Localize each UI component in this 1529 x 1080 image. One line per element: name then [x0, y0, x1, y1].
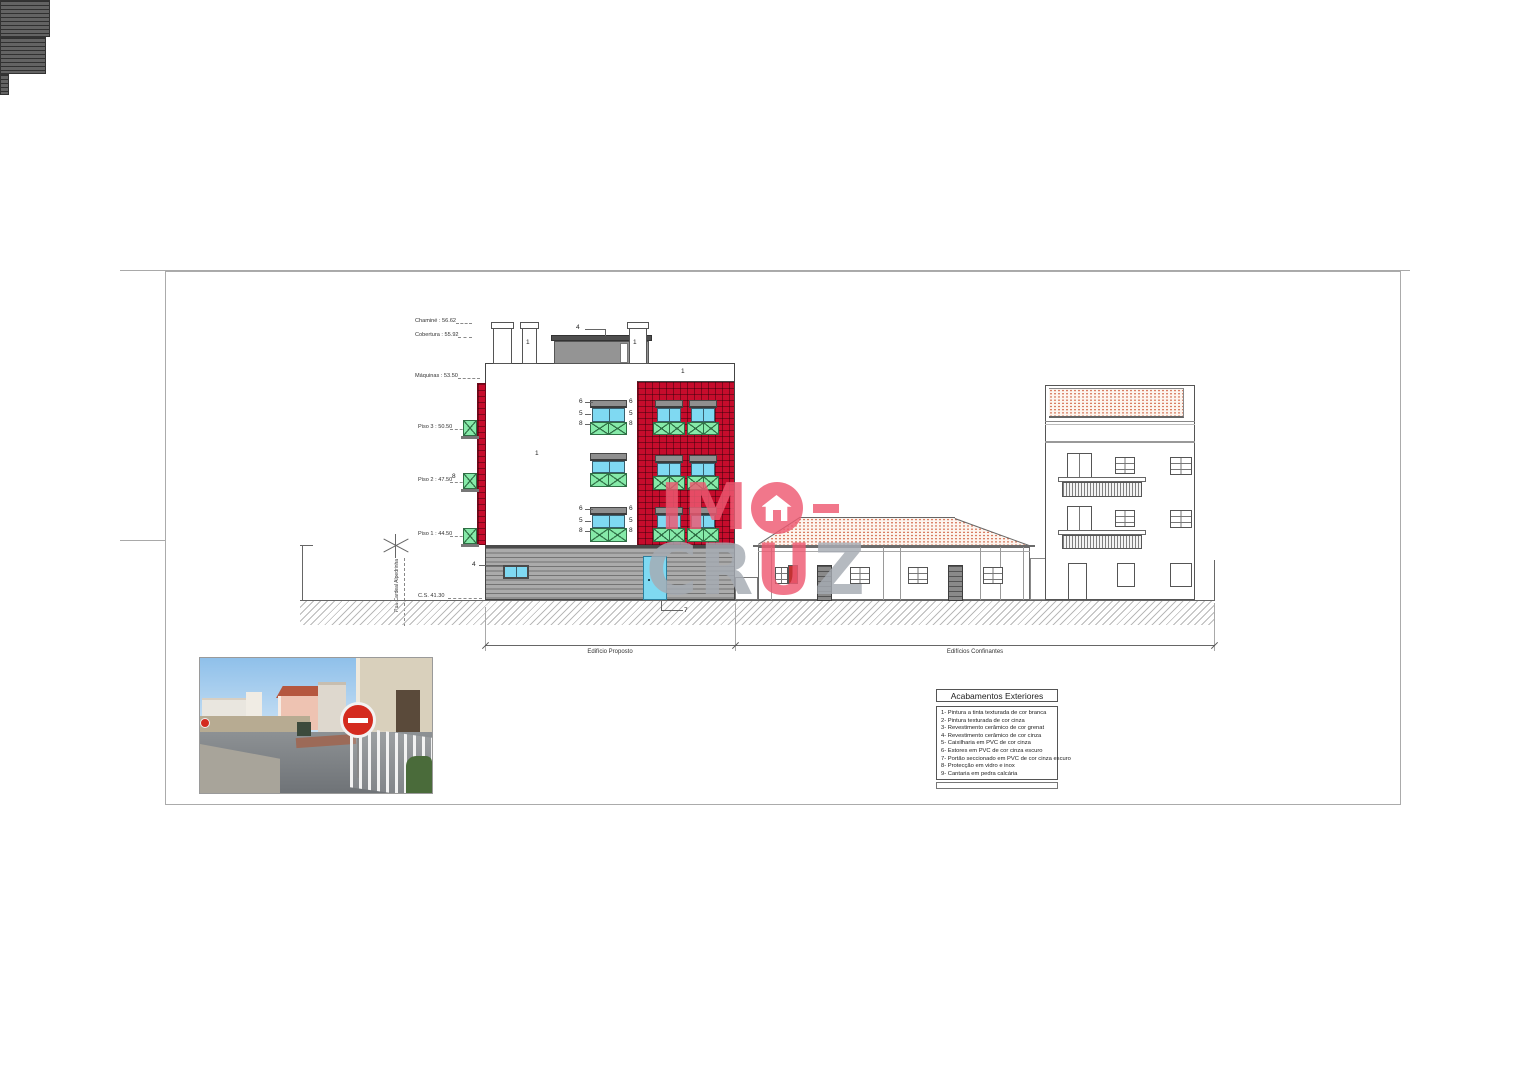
yard-wall — [1030, 558, 1046, 600]
legend-item: 7- Portão seccionado em PVC de cor cinza… — [941, 756, 1057, 764]
window-railing — [590, 473, 627, 487]
window-plain — [1117, 563, 1135, 587]
side-window — [463, 473, 477, 489]
drawing-sheet: Chaminé : 56.62 Cobertura : 55.92 Máquin… — [0, 0, 1529, 1080]
house-ridge-line — [800, 517, 955, 518]
garage-door — [0, 37, 46, 74]
window-shutter-box — [590, 453, 627, 461]
dimension-label-adjoining: Edifícios Confinantes — [735, 649, 1215, 656]
house-window — [908, 567, 928, 584]
leader-line — [585, 414, 591, 415]
callout-8: 8 — [629, 527, 633, 534]
window-glass — [691, 463, 715, 476]
level-label-roof: Cobertura : 55.92 — [415, 332, 459, 339]
leader-line — [605, 329, 606, 336]
house-window — [983, 567, 1003, 584]
house-door — [817, 565, 832, 601]
garage-door — [0, 0, 50, 37]
cornice-line — [1045, 421, 1195, 422]
legend-item: 6- Estores em PVC de cor cinza escuro — [941, 748, 1057, 756]
legend-item: 5- Caixilharia em PVC de cor cinza — [941, 740, 1057, 748]
level-label-machines: Máquinas : 53.50 — [415, 373, 458, 380]
legend-title-box: Acabamentos Exteriores — [936, 689, 1058, 702]
window-shutter-box — [655, 507, 683, 515]
leader-line — [479, 565, 503, 566]
callout-8: 8 — [579, 527, 583, 534]
legend-item: 8- Protecção em vidro e inox — [941, 763, 1057, 771]
adjacent-roof-band — [1049, 388, 1184, 418]
legend-items-box: 1- Pintura a tinta texturada de cor bran… — [936, 706, 1058, 780]
callout-1-parapet: 1 — [681, 368, 685, 375]
boundary-gate — [0, 74, 9, 95]
callout-6: 6 — [579, 398, 583, 405]
callout-4-ground: 4 — [472, 561, 476, 568]
level-dash — [456, 323, 472, 324]
leader-line — [585, 424, 591, 425]
leader-line — [585, 402, 593, 403]
side-window — [463, 420, 477, 436]
leader-line — [585, 329, 605, 330]
ground-left-step-v — [302, 545, 303, 600]
ground-small-window — [503, 565, 529, 579]
pilaster — [900, 547, 901, 600]
survey-cross-icon — [382, 536, 410, 556]
legend-item: 4- Revestimento cerâmico de cor cinza — [941, 733, 1057, 741]
no-entry-sign-icon — [340, 702, 376, 738]
window — [1170, 457, 1192, 475]
chimney — [629, 328, 647, 364]
frame-notch-line — [120, 540, 165, 541]
legend-item: 3- Revestimento cerâmico de cor grenat — [941, 725, 1057, 733]
cornice-line — [1045, 424, 1195, 425]
callout-1-chimney: 1 — [526, 339, 530, 346]
photo-trash-bin — [297, 722, 311, 736]
callout-7-garage: 7 — [684, 607, 688, 614]
level-dash — [458, 337, 472, 338]
level-label-chimney: Chaminé : 56.62 — [415, 318, 456, 325]
window-shutter-box — [689, 400, 717, 408]
chimney — [493, 328, 512, 364]
level-dash — [458, 378, 480, 379]
level-label-floor2: Piso 2 : 47.50 — [418, 477, 452, 484]
red-tile-section — [637, 381, 734, 545]
balcony-door — [1067, 453, 1092, 478]
ground-hatch — [300, 601, 1215, 625]
house-window — [850, 567, 870, 584]
window-railing — [687, 422, 719, 435]
callout-1-facade: 1 — [535, 450, 539, 457]
callout-8: 8 — [629, 420, 633, 427]
window-railing — [687, 528, 719, 542]
level-label-floor1: Piso 1 : 44.50 — [418, 531, 452, 538]
callout-6: 6 — [579, 505, 583, 512]
leader-line — [585, 521, 591, 522]
boundary-wall — [735, 577, 758, 600]
window-railing — [653, 476, 685, 490]
window-plain — [1170, 563, 1192, 587]
window-shutter-box — [689, 455, 717, 463]
window-glass — [691, 515, 715, 528]
window-shutter-box — [689, 507, 717, 515]
callout-4-penthouse: 4 — [576, 324, 580, 331]
window-shutter-box — [590, 400, 627, 408]
sign-pole — [357, 738, 359, 778]
callout-6: 6 — [629, 398, 633, 405]
house-window-red — [788, 565, 798, 584]
legend-item: 9- Cantaria em pedra calcária — [941, 771, 1057, 779]
legend-title: Acabamentos Exteriores — [951, 691, 1044, 701]
callout-5: 5 — [579, 517, 583, 524]
ground-left-step-h — [300, 545, 313, 546]
level-label-floor3: Piso 3 : 50.50 — [418, 424, 452, 431]
photo-bush — [406, 756, 432, 793]
window-glass — [592, 515, 625, 528]
window-railing — [590, 422, 627, 435]
callout-5: 5 — [629, 410, 633, 417]
pilaster — [883, 547, 884, 600]
side-window — [463, 528, 477, 544]
window-glass — [592, 461, 625, 473]
side-window-sill — [461, 489, 479, 492]
window-glass — [657, 463, 681, 476]
balcony-railing — [1062, 482, 1142, 497]
balcony-railing — [1062, 535, 1142, 549]
house-frieze-line — [758, 551, 1030, 552]
window-railing — [590, 528, 627, 542]
pilaster — [771, 547, 772, 600]
pilaster — [1023, 547, 1024, 600]
leader-line — [585, 509, 593, 510]
window-shutter-box — [655, 400, 683, 408]
callout-8: 8 — [579, 420, 583, 427]
cornice-line — [1045, 441, 1195, 443]
window — [1115, 510, 1135, 527]
window — [1170, 510, 1192, 528]
legend-item: 2- Pintura texturada de cor cinza — [941, 718, 1057, 726]
leader-line — [661, 601, 662, 610]
balcony-door — [1067, 506, 1092, 531]
entry-door — [643, 556, 667, 600]
level-dash — [448, 598, 482, 599]
chimney — [522, 328, 537, 364]
window-railing — [653, 528, 685, 542]
window-shutter-box — [655, 455, 683, 463]
callout-5: 5 — [629, 517, 633, 524]
boundary-line — [1214, 560, 1215, 600]
window-glass — [691, 408, 715, 422]
leader-line — [585, 531, 591, 532]
side-window-sill — [461, 436, 479, 439]
small-no-entry-sign-icon — [200, 718, 210, 728]
level-label-street: C.S. 41.30 — [418, 593, 444, 600]
window-railing — [653, 422, 685, 435]
door-handle — [648, 579, 650, 581]
callout-1-chimney: 1 — [633, 339, 637, 346]
entrance-door — [1068, 563, 1087, 600]
legend-bottom-strip — [936, 782, 1058, 789]
leader-line — [661, 610, 683, 611]
house-door — [948, 565, 963, 601]
window-shutter-box — [590, 507, 627, 515]
window — [1115, 457, 1135, 474]
side-window-sill — [461, 544, 479, 547]
penthouse-door — [620, 343, 628, 363]
legend-item: 1- Pintura a tinta texturada de cor bran… — [941, 710, 1057, 718]
callout-6: 6 — [629, 505, 633, 512]
window-glass — [592, 408, 625, 422]
callout-5: 5 — [579, 410, 583, 417]
window-glass — [657, 408, 681, 422]
red-tile-side-strip — [477, 383, 486, 545]
dimension-line — [485, 645, 1215, 646]
window-railing — [687, 476, 719, 490]
street-photo — [199, 657, 433, 794]
callout-8-left: 8 — [452, 473, 456, 480]
window-glass — [657, 515, 681, 528]
house-window — [775, 567, 788, 584]
dimension-label-proposed: Edifício Proposto — [485, 649, 735, 656]
photo-right-door — [396, 690, 420, 738]
pilaster — [980, 547, 981, 600]
